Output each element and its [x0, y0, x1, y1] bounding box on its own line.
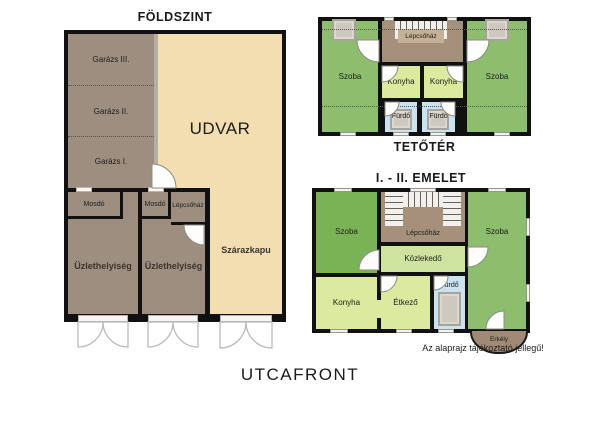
street-front-label: UTCAFRONT: [180, 365, 420, 385]
window-marker: [410, 188, 436, 192]
disclaimer-text: Az alaprajz tájékoztató jellegű!: [403, 344, 563, 354]
window-marker: [447, 17, 457, 21]
window-marker: [330, 329, 348, 333]
room-udvar: [158, 34, 282, 188]
skylight-window: [485, 19, 509, 41]
window-marker: [430, 132, 446, 136]
roof-line: [322, 29, 527, 30]
window-marker: [396, 329, 412, 333]
wall: [120, 192, 123, 219]
skylight-window: [332, 19, 356, 41]
garage-divider-line: [68, 136, 154, 137]
room-label-emelet-kozlekedo: Közlekedő: [381, 255, 465, 264]
upper-floors-plan: Szoba Konyha Lépcsőház Közlekedő Étkező …: [312, 188, 530, 333]
door-opening-street: [220, 315, 272, 322]
room-label-attic-konyha-right: Konyha: [424, 78, 463, 87]
door-arc: [246, 322, 272, 348]
room-label-attic-szoba-left: Szoba: [322, 73, 378, 82]
garage-divider-line: [68, 85, 154, 86]
window-marker: [526, 218, 530, 236]
room-label-attic-szoba-right: Szoba: [467, 73, 527, 82]
window-marker: [526, 284, 530, 302]
window-marker: [334, 188, 352, 192]
window-marker: [494, 132, 510, 136]
window-marker: [393, 132, 409, 136]
room-label-garage3: Garázs III.: [68, 56, 154, 65]
door-arc: [148, 322, 173, 347]
room-uzlet-right-block: [142, 192, 205, 314]
room-label-attic-furdo-right: Fürdő: [422, 113, 455, 121]
stair-treads: [403, 192, 443, 207]
window-marker: [488, 188, 506, 192]
door-opening-street: [148, 315, 198, 322]
room-label-udvar: UDVAR: [158, 120, 282, 139]
attic-plan: Lépcsőház Konyha Konyha Fürdő Fürdő Szob…: [318, 17, 531, 136]
window-marker: [340, 132, 356, 136]
room-uzlet-left-block: [68, 192, 138, 314]
upper-floors-title: I. - II. EMELET: [312, 171, 530, 185]
door-arc: [78, 322, 103, 347]
attic-title: TETŐTÉR: [318, 140, 531, 154]
room-label-emelet-szoba-left: Szoba: [316, 228, 377, 237]
window-marker: [384, 17, 394, 21]
room-label-attic-furdo-left: Fürdő: [385, 113, 417, 121]
ground-floor-title: FÖLDSZINT: [64, 10, 286, 24]
wall: [142, 216, 168, 219]
room-label-emelet-etkezo: Étkező: [381, 299, 430, 308]
door-opening: [148, 187, 164, 192]
door-arc: [220, 322, 246, 348]
room-label-szarazkapu: Szárazkapu: [210, 246, 282, 256]
door-arc: [103, 322, 128, 347]
room-emelet-szoba-right: [468, 192, 526, 329]
room-label-uzlet-right: Üzlethelyiség: [142, 262, 205, 272]
floor-plan-sheet: FÖLDSZINT Garázs III. Garázs II. Garázs …: [0, 0, 600, 424]
room-label-emelet-lepcsohaz: Lépcsőház: [381, 230, 465, 238]
wall: [171, 222, 205, 225]
room-label-emelet-furdo: Fürdő: [434, 282, 465, 290]
window-marker: [438, 329, 454, 333]
room-label-garage2: Garázs II.: [68, 108, 154, 117]
roof-line: [322, 106, 527, 107]
bathtub: [438, 292, 461, 326]
room-label-mosdo-right: Mosdó: [142, 201, 168, 209]
stair-treads: [443, 192, 461, 226]
room-label-mosdo-left: Mosdó: [68, 201, 120, 209]
door-opening: [76, 187, 92, 192]
door-opening-street: [78, 315, 128, 322]
wall: [68, 216, 120, 219]
room-label-emelet-konyha: Konyha: [316, 299, 377, 308]
room-label-emelet-szoba-right: Szoba: [468, 228, 526, 237]
door-opening: [376, 300, 382, 318]
room-label-garage1: Garázs I.: [68, 158, 154, 167]
room-label-uzlet-left: Üzlethelyiség: [68, 262, 138, 272]
room-label-attic-lepcsohaz: Lépcsőház: [398, 33, 444, 40]
room-label-attic-konyha-left: Konyha: [382, 78, 420, 87]
door-arc: [173, 322, 198, 347]
ground-floor-plan: Garázs III. Garázs II. Garázs I. UDVAR S…: [64, 30, 286, 322]
room-label-lepcsohaz-ground: Lépcsőház: [171, 202, 205, 209]
stair-treads: [385, 192, 403, 226]
